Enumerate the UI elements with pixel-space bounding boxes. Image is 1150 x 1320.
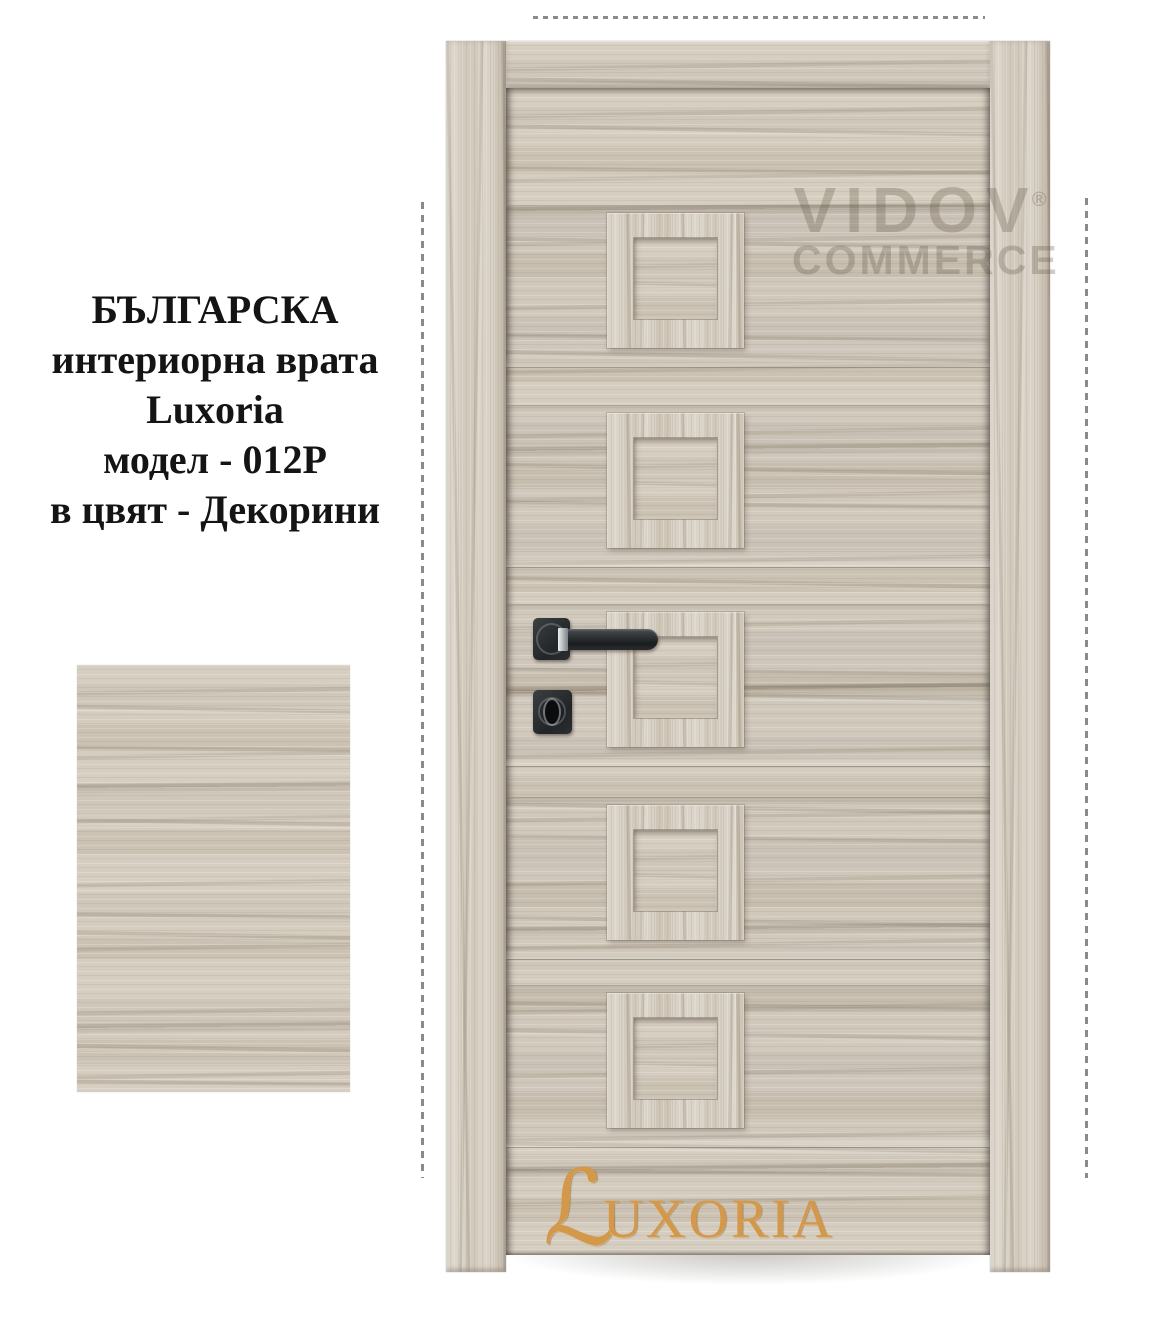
door-panel-recess [634, 830, 717, 911]
luxoria-logo-text: UXORIA [603, 1191, 835, 1246]
caption: БЪЛГАРСКА интериорна врата Luxoria модел… [10, 285, 420, 535]
door-groove [506, 797, 990, 960]
caption-line-type: интериорна врата [10, 335, 420, 385]
door-leaf: ℒ UXORIA [506, 88, 990, 1255]
right-dashed-guide-line [1085, 198, 1088, 1178]
product-image-canvas: БЪЛГАРСКА интериорна врата Luxoria модел… [0, 0, 1150, 1320]
door-groove [506, 405, 990, 568]
caption-line-brand: Luxoria [10, 385, 420, 435]
keyhole-escutcheon [533, 690, 572, 734]
door-panel-recess [634, 438, 717, 519]
door-panel-recess [634, 1018, 717, 1099]
caption-line-model: модел - 012P [10, 435, 420, 485]
door-groove [506, 205, 990, 368]
door-panel-recess [634, 238, 717, 319]
luxoria-logo: ℒ UXORIA [543, 1158, 853, 1268]
wood-decor-swatch [77, 665, 350, 1092]
left-dashed-guide-line [421, 202, 424, 1178]
door-groove [506, 985, 990, 1148]
door-frame-left-jamb [446, 41, 506, 1272]
caption-line-color: в цвят - Декорини [10, 485, 420, 535]
door-panel [607, 413, 744, 548]
door-panel [607, 993, 744, 1128]
caption-line-origin: БЪЛГАРСКА [10, 285, 420, 335]
door-handle-lever [566, 629, 658, 650]
top-dashed-guide-line [533, 16, 985, 19]
door-frame-lintel [506, 41, 990, 88]
door-panel [607, 805, 744, 940]
door-panel [607, 213, 744, 348]
door-handle-collar [558, 628, 568, 651]
door-frame-right-jamb [990, 41, 1050, 1272]
